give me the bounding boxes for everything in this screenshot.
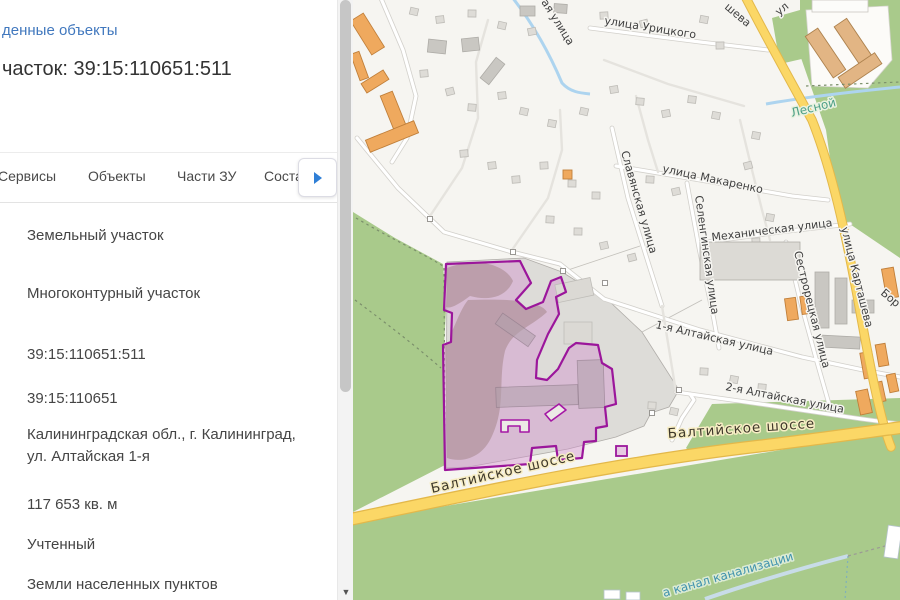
list-item: 39:15:110651:511 (27, 344, 317, 366)
cadastral-map-app: денные объекты часток: 39:15:110651:511 … (0, 0, 900, 600)
parcel-detached-square[interactable] (616, 446, 627, 456)
list-item: 117 653 кв. м (27, 494, 317, 516)
panel-scrollbar[interactable]: ▼ (337, 0, 354, 600)
tab-3[interactable]: Части ЗУ (177, 168, 236, 184)
list-item: Земельный участок (27, 225, 317, 247)
tab-1[interactable]: Сервисы (0, 168, 56, 184)
tab-2[interactable]: Объекты (88, 168, 146, 184)
found-objects-link[interactable]: денные объекты (2, 22, 118, 39)
list-item: Земли населенных пунктов (27, 574, 317, 596)
map-container[interactable]: улица Урицкогошеваая улицаулулица Макаре… (353, 0, 900, 600)
large-building (812, 0, 868, 12)
list-item: Калининградская обл., г. Калининград, ул… (27, 424, 317, 468)
list-item: 39:15:110651 (27, 388, 317, 410)
list-item: Учтенный (27, 534, 317, 556)
map-canvas[interactable]: улица Урицкогошеваая улицаулулица Макаре… (353, 0, 900, 600)
scrollbar-thumb[interactable] (340, 0, 351, 392)
chevron-right-icon (314, 172, 322, 184)
page-title: часток: 39:15:110651:511 (2, 58, 232, 81)
list-item: Многоконтурный участок (27, 283, 317, 305)
object-info-panel: денные объекты часток: 39:15:110651:511 … (0, 0, 337, 600)
expand-panel-button[interactable] (298, 158, 337, 197)
scrollbar-down-arrow[interactable]: ▼ (338, 584, 354, 600)
tab-bar: СервисыОбъектыЧасти ЗУСоставные ЗУ (0, 152, 337, 203)
